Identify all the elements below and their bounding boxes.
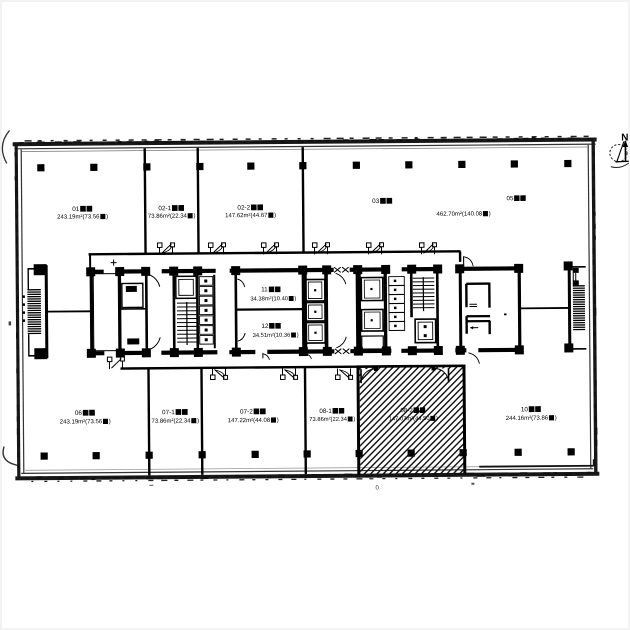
svg-text:03: 03: [372, 198, 380, 205]
svg-text:02-1: 02-1: [158, 205, 171, 212]
svg-text:73.86m²(22.34: 73.86m²(22.34: [151, 418, 191, 424]
svg-text:11: 11: [261, 286, 268, 293]
svg-text:06: 06: [75, 410, 83, 417]
svg-text:): ): [555, 416, 557, 422]
svg-text:147.07m²(44.50: 147.07m²(44.50: [389, 416, 430, 422]
svg-text:147.22m²(44.08: 147.22m²(44.08: [228, 418, 271, 424]
svg-text:01: 01: [72, 206, 80, 213]
svg-text:): ): [109, 419, 111, 425]
svg-text:07-1: 07-1: [162, 409, 175, 416]
svg-text:): ): [353, 417, 355, 423]
svg-text:): ): [193, 214, 195, 220]
svg-text:08-2: 08-2: [400, 407, 413, 414]
svg-text:): ): [297, 333, 299, 339]
svg-text:34.51m²(10.36: 34.51m²(10.36: [253, 333, 291, 339]
svg-text:): ): [436, 416, 438, 422]
svg-text:244.16m²(73.86: 244.16m²(73.86: [506, 416, 549, 422]
svg-text:): ): [294, 296, 296, 302]
svg-text:10: 10: [521, 406, 529, 413]
svg-text:): ): [489, 211, 491, 217]
svg-text:73.86m²(22.34: 73.86m²(22.34: [309, 417, 348, 423]
svg-text:243.19m²(73.56: 243.19m²(73.56: [57, 214, 100, 220]
svg-text:): ): [106, 214, 108, 220]
svg-text:08-1: 08-1: [319, 408, 332, 415]
svg-text:73.86m²(22.34: 73.86m²(22.34: [148, 214, 188, 220]
svg-text:12: 12: [262, 323, 269, 330]
svg-text:02-2: 02-2: [237, 205, 250, 212]
svg-text:07-2: 07-2: [240, 408, 253, 415]
svg-text:462.70m²(140.08: 462.70m²(140.08: [437, 211, 483, 217]
svg-text:): ): [277, 418, 279, 424]
svg-text:34.38m²(10.40: 34.38m²(10.40: [250, 296, 288, 302]
svg-text:147.62m²(44.67: 147.62m²(44.67: [225, 213, 268, 219]
svg-text:): ): [197, 418, 199, 424]
svg-text:243.19m²(73.56: 243.19m²(73.56: [60, 419, 103, 425]
svg-text:): ): [274, 213, 276, 219]
svg-text:05: 05: [506, 195, 513, 202]
